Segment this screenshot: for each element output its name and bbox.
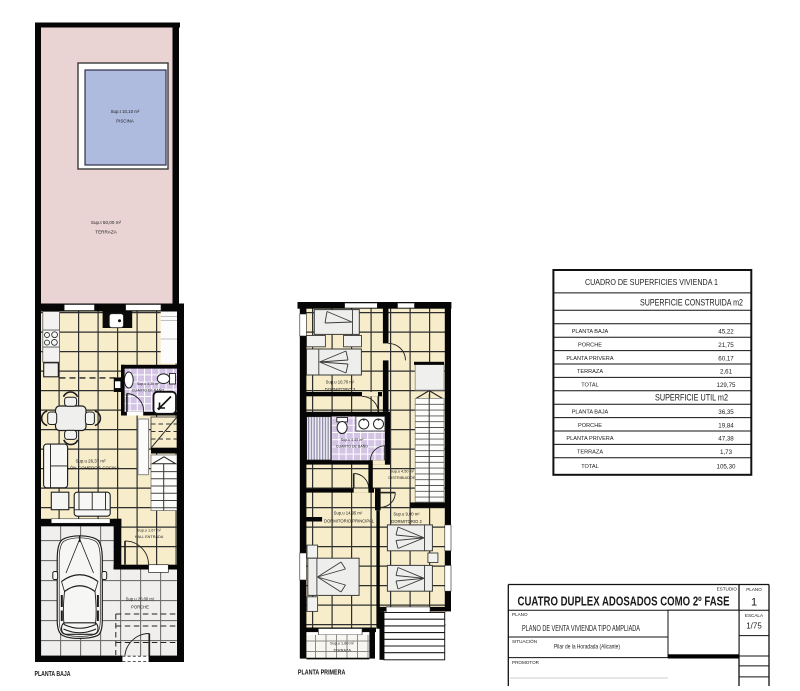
svg-text:PLANO DE VENTA VIVIENDA TIPO A: PLANO DE VENTA VIVIENDA TIPO AMPLIADA: [522, 623, 640, 633]
svg-text:ESCALA: ESCALA: [745, 613, 764, 618]
svg-text:PLANTA PRIVERA: PLANTA PRIVERA: [566, 356, 613, 362]
svg-text:Sup.u 26,37 m²: Sup.u 26,37 m²: [75, 459, 106, 464]
svg-text:21,75: 21,75: [718, 342, 734, 349]
svg-text:Sup.u 14,95 m²: Sup.u 14,95 m²: [334, 511, 363, 516]
svg-text:36,35: 36,35: [718, 409, 734, 416]
svg-text:DORMITORIO 3: DORMITORIO 3: [325, 387, 356, 392]
svg-text:HALL ENTRADA: HALL ENTRADA: [135, 535, 164, 539]
svg-text:Sup.t 10,10 m²: Sup.t 10,10 m²: [111, 109, 140, 114]
svg-text:CUADRO DE SUPERFICIES VIVIENDA: CUADRO DE SUPERFICIES VIVIENDA 1: [585, 278, 718, 287]
svg-text:CUATRO DUPLEX ADOSADOS COMO 2º: CUATRO DUPLEX ADOSADOS COMO 2º FASE: [518, 595, 730, 609]
svg-text:Sup.u 1,80 m²: Sup.u 1,80 m²: [330, 642, 355, 646]
svg-text:SUPERFICIE CONSTRUIDA m2: SUPERFICIE CONSTRUIDA m2: [640, 298, 743, 308]
svg-text:PLANTA BAJA: PLANTA BAJA: [35, 669, 71, 678]
svg-text:TOTAL: TOTAL: [581, 464, 599, 470]
svg-text:PLANTA PRIVERA: PLANTA PRIVERA: [566, 436, 613, 442]
svg-text:SUPERFICIE UTIL m2: SUPERFICIE UTIL m2: [655, 393, 728, 403]
svg-text:PROMOTOR: PROMOTOR: [512, 660, 540, 665]
svg-text:DORMITORIO 2: DORMITORIO 2: [391, 519, 422, 524]
svg-text:TERRAZA: TERRAZA: [95, 230, 117, 235]
svg-text:60,17: 60,17: [718, 355, 734, 362]
svg-text:1: 1: [751, 597, 757, 609]
svg-text:Sup.u 3,30 m²: Sup.u 3,30 m²: [137, 382, 160, 386]
svg-text:DISTRIBUIDOR: DISTRIBUIDOR: [388, 476, 415, 480]
svg-text:47,38: 47,38: [718, 436, 734, 443]
svg-text:TERRAZA: TERRAZA: [577, 369, 603, 375]
svg-text:Sup.u 9,00 m²: Sup.u 9,00 m²: [393, 512, 420, 517]
svg-text:TERRAZA: TERRAZA: [333, 649, 351, 653]
svg-text:1,73: 1,73: [720, 449, 733, 456]
svg-text:2,61: 2,61: [720, 369, 733, 376]
svg-text:Sup.u 4,40 m²: Sup.u 4,40 m²: [341, 438, 364, 442]
svg-text:PORCHE: PORCHE: [578, 423, 602, 429]
svg-text:PORCHE: PORCHE: [131, 605, 149, 610]
svg-text:TERRAZA: TERRAZA: [577, 450, 603, 456]
svg-text:PLANTA BAJA: PLANTA BAJA: [572, 409, 609, 415]
svg-text:TOTAL: TOTAL: [581, 383, 599, 389]
svg-text:Sup.u 4,50 m²: Sup.u 4,50 m²: [390, 470, 415, 474]
svg-text:PLANO: PLANO: [746, 587, 762, 592]
svg-text:19,84: 19,84: [718, 422, 734, 429]
svg-text:Sup.u 10,70 m²: Sup.u 10,70 m²: [326, 380, 355, 385]
svg-text:129,75: 129,75: [717, 382, 736, 389]
svg-text:Sup.t 50,00 m²: Sup.t 50,00 m²: [91, 220, 122, 225]
svg-text:SALÓN-COMEDOR-COCINA: SALÓN-COMEDOR-COCINA: [62, 466, 120, 471]
svg-text:PORCHE: PORCHE: [578, 342, 602, 348]
svg-text:Sup.u 1,67 m²: Sup.u 1,67 m²: [137, 529, 162, 533]
svg-text:ESTUDIO: ESTUDIO: [717, 587, 738, 592]
svg-text:PLANTA BAJA: PLANTA BAJA: [572, 329, 609, 335]
svg-text:PLANTA PRIMERA: PLANTA PRIMERA: [298, 668, 346, 677]
svg-text:PISCINA: PISCINA: [116, 119, 134, 124]
svg-text:DORMITORIO PRINCIPAL: DORMITORIO PRINCIPAL: [324, 519, 375, 524]
svg-text:Pilar de la Horadada (Alicante: Pilar de la Horadada (Alicante): [554, 645, 620, 651]
svg-text:45,22: 45,22: [718, 329, 734, 336]
svg-text:1/75: 1/75: [746, 622, 762, 631]
svg-text:Sup.u 20,00 m²: Sup.u 20,00 m²: [126, 597, 155, 602]
svg-text:CUARTO DE BAÑO: CUARTO DE BAÑO: [336, 444, 368, 449]
svg-text:PLANO: PLANO: [512, 612, 528, 617]
svg-text:105,30: 105,30: [717, 464, 736, 471]
svg-text:SITUACIÓN: SITUACIÓN: [512, 638, 537, 644]
